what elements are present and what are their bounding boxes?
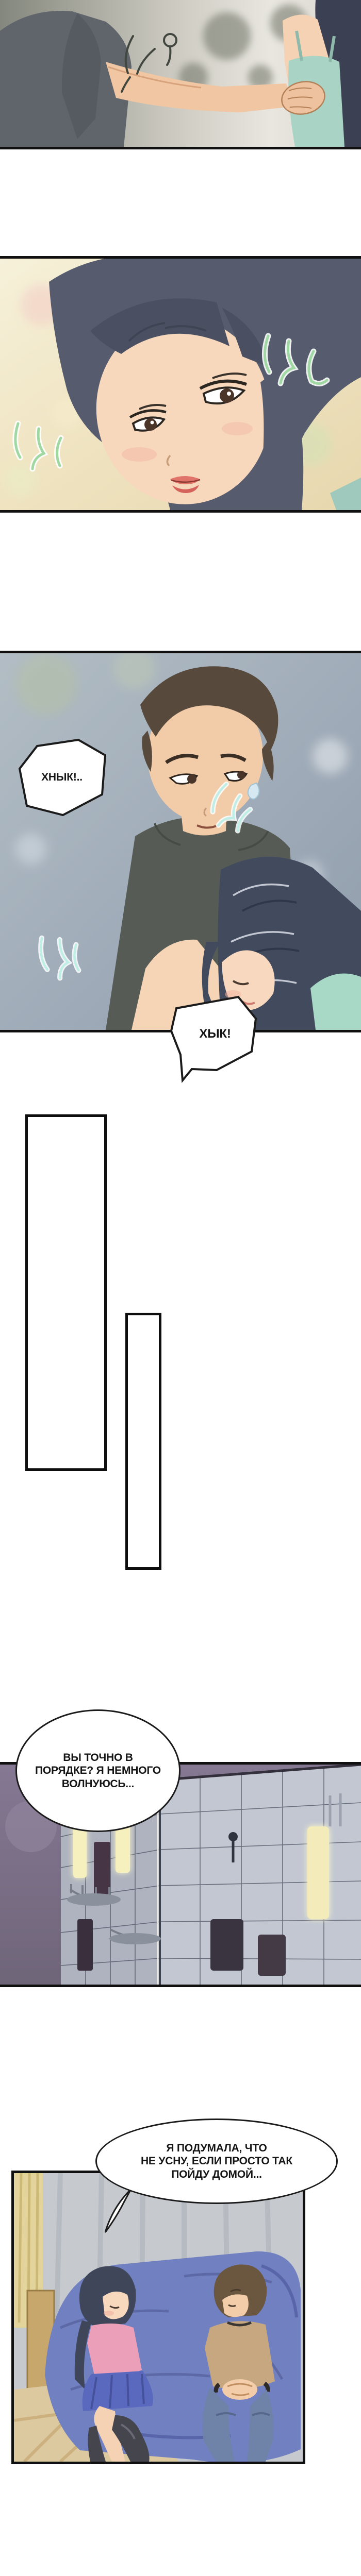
panel-grab-scene — [0, 0, 361, 149]
empty-panel-narrow — [125, 1313, 161, 1570]
speech-bubble-thought-tail — [101, 2187, 137, 2236]
panel-hug-illustration — [0, 653, 361, 1030]
comic-page: ХНЫК!.. ХЫК! — [0, 0, 361, 2576]
speech-bubble-worried: ВЫ ТОЧНО В ПОРЯДКЕ? Я НЕМНОГО ВОЛНУЮСЬ..… — [15, 1709, 180, 1832]
speech-bubble-worried-text: ВЫ ТОЧНО В ПОРЯДКЕ? Я НЕМНОГО ВОЛНУЮСЬ..… — [35, 1751, 161, 1791]
panel-hug-scene — [0, 651, 361, 1032]
panel-tearful-face — [0, 256, 361, 513]
speech-bubble-hyk-text: ХЫК! — [182, 1026, 249, 1041]
speech-bubble-hnyk-text: ХНЫК!.. — [28, 771, 95, 784]
speech-bubble-thought: Я ПОДУМАЛА, ЧТО НЕ УСНУ, ЕСЛИ ПРОСТО ТАК… — [95, 2119, 338, 2204]
speech-bubble-thought-text: Я ПОДУМАЛА, ЧТО НЕ УСНУ, ЕСЛИ ПРОСТО ТАК… — [141, 2142, 292, 2181]
panel-couch-scene — [11, 2171, 305, 2464]
empty-panel-tall — [25, 1114, 107, 1471]
panel-grab-illustration — [0, 0, 361, 147]
panel-couch-illustration — [14, 2173, 303, 2462]
panel-face-illustration — [0, 259, 361, 510]
